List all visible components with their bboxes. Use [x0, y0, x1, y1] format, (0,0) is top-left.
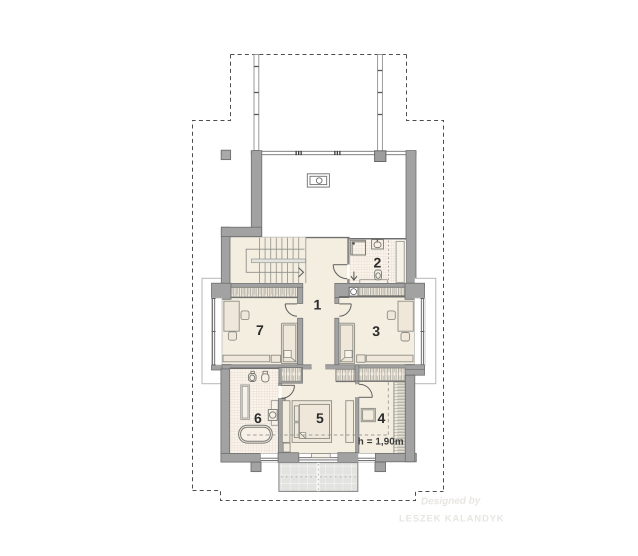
svg-text:1: 1 — [314, 297, 322, 313]
svg-text:4: 4 — [378, 410, 386, 426]
svg-text:Designed by: Designed by — [421, 495, 481, 507]
svg-text:2: 2 — [374, 255, 382, 271]
svg-text:3: 3 — [372, 323, 380, 339]
svg-text:5: 5 — [316, 410, 324, 426]
svg-text:h = 1,90m: h = 1,90m — [358, 436, 404, 447]
svg-text:6: 6 — [254, 410, 262, 426]
svg-text:7: 7 — [256, 322, 264, 338]
svg-text:LESZEK KALANDYK: LESZEK KALANDYK — [399, 514, 504, 525]
